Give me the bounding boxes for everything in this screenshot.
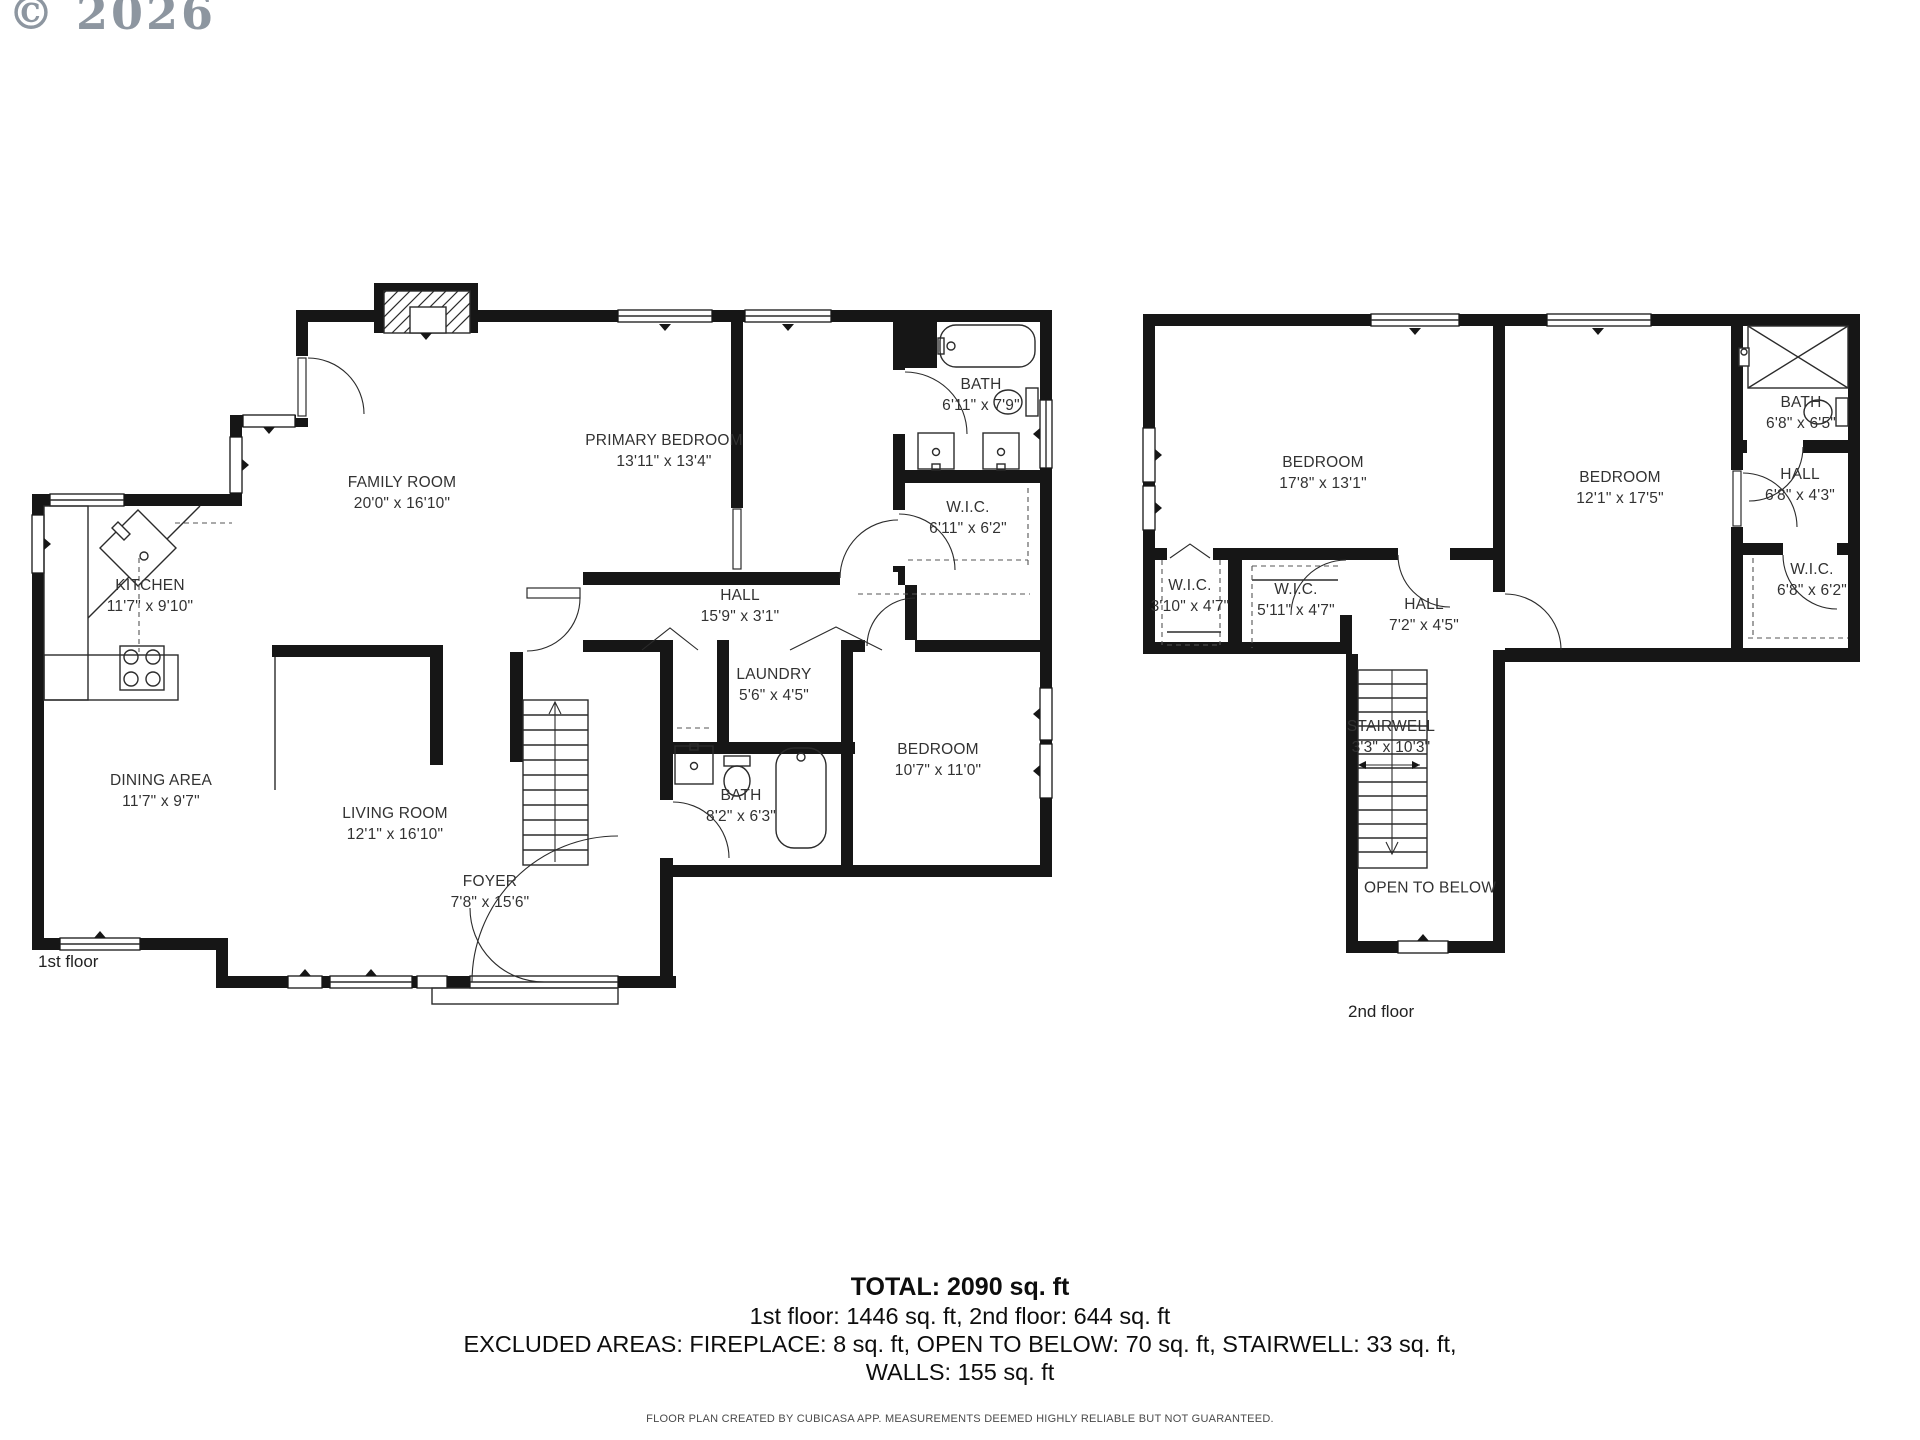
total-area: TOTAL: 2090 sq. ft bbox=[0, 1272, 1920, 1302]
room-label: BEDROOM17'8" x 13'1" bbox=[1279, 453, 1367, 495]
room-label: FOYER7'8" x 15'6" bbox=[451, 872, 530, 914]
floor2-stairs bbox=[1358, 670, 1427, 868]
room-label: W.I.C.5'11" x 4'7" bbox=[1257, 580, 1335, 622]
room-label: BEDROOM10'7" x 11'0" bbox=[895, 740, 981, 782]
room-label: BATH6'11" x 7'9" bbox=[942, 375, 1020, 417]
floor2-plan bbox=[1143, 314, 1860, 953]
bathtub-icon bbox=[776, 748, 826, 848]
room-label: HALL7'2" x 4'5" bbox=[1389, 595, 1459, 637]
floorplan-page: © 2026 bbox=[0, 0, 1920, 1440]
floor2-tag: 2nd floor bbox=[1348, 1002, 1414, 1022]
toilet-icon bbox=[724, 756, 750, 766]
room-label: W.I.C.6'11" x 6'2" bbox=[929, 498, 1007, 540]
room-label: BATH8'2" x 6'3" bbox=[706, 786, 776, 828]
room-label: LAUNDRY5'6" x 4'5" bbox=[736, 665, 811, 707]
room-label: W.I.C.3'10" x 4'7" bbox=[1151, 576, 1230, 618]
floor1-plan bbox=[32, 283, 1052, 1004]
room-label: OPEN TO BELOW bbox=[1364, 879, 1496, 900]
room-label: FAMILY ROOM20'0" x 16'10" bbox=[348, 473, 456, 515]
toilet-icon bbox=[1836, 398, 1848, 426]
room-label: PRIMARY BEDROOM13'11" x 13'4" bbox=[585, 431, 742, 473]
floorplan-drawing bbox=[0, 0, 1920, 1440]
room-label: STAIRWELL3'3" x 10'3" bbox=[1347, 717, 1435, 759]
walls-area: WALLS: 155 sq. ft bbox=[0, 1358, 1920, 1386]
floor2-ticks bbox=[1155, 328, 1604, 941]
room-label: KITCHEN11'7" x 9'10" bbox=[107, 576, 193, 618]
room-label: LIVING ROOM12'1" x 16'10" bbox=[342, 804, 448, 846]
excluded-areas: EXCLUDED AREAS: FIREPLACE: 8 sq. ft, OPE… bbox=[0, 1330, 1920, 1358]
room-label: HALL15'9" x 3'1" bbox=[701, 586, 780, 628]
room-label: HALL6'8" x 4'3" bbox=[1765, 465, 1835, 507]
room-label: BATH6'8" x 6'5" bbox=[1766, 393, 1836, 435]
stove-icon bbox=[120, 646, 164, 690]
floor1-stairs bbox=[523, 700, 588, 865]
disclaimer: FLOOR PLAN CREATED BY CUBICASA APP. MEAS… bbox=[0, 1413, 1920, 1425]
floor-areas: 1st floor: 1446 sq. ft, 2nd floor: 644 s… bbox=[0, 1302, 1920, 1330]
toilet-icon bbox=[1026, 388, 1038, 416]
entry-porch bbox=[432, 988, 618, 1004]
room-label: W.I.C.6'8" x 6'2" bbox=[1777, 560, 1847, 602]
room-label: BEDROOM12'1" x 17'5" bbox=[1576, 468, 1664, 510]
area-summary: TOTAL: 2090 sq. ft 1st floor: 1446 sq. f… bbox=[0, 1272, 1920, 1387]
floor1-tag: 1st floor bbox=[38, 952, 98, 972]
room-label: DINING AREA11'7" x 9'7" bbox=[110, 771, 212, 813]
bathtub-icon bbox=[940, 325, 1035, 367]
